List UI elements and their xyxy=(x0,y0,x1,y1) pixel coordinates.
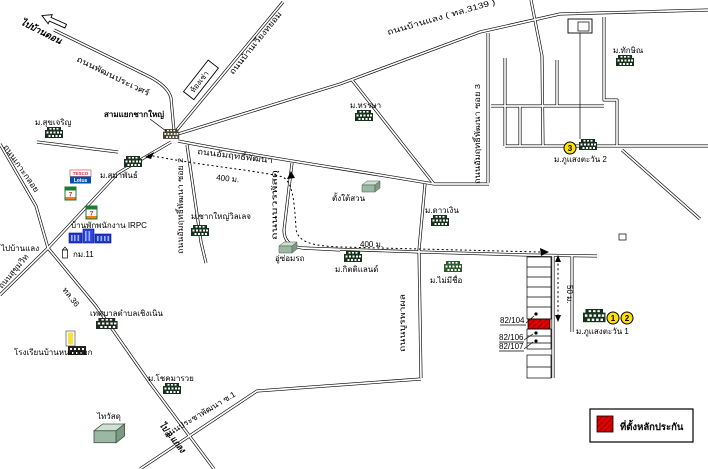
school-label: โรงเรียนบ้านหนองจอก xyxy=(14,347,93,357)
marker-2-number: 2 xyxy=(625,314,630,323)
phusaeng-tawan2-label: ม.ภูแสงตะวัน 2 xyxy=(554,155,607,165)
chok-maruay-label: ม.โชคมารวย xyxy=(148,373,194,383)
collateral-unit xyxy=(528,319,550,329)
no-name-village-icon xyxy=(444,261,462,272)
dao-ngoen-label: ม.ดาวเงิน xyxy=(425,206,459,215)
phusaeng-tawan1-icon xyxy=(583,309,606,322)
dao-ngoen-icon xyxy=(431,215,449,226)
road-label-bowon: ถนนบวรพัสดุ xyxy=(270,170,279,240)
lotus-text: Lotus xyxy=(74,178,88,184)
small-structure xyxy=(619,234,626,240)
road-connector xyxy=(352,80,434,184)
hansa-label: ม.หรรษา xyxy=(350,101,381,110)
distance-400m-a: 400 ม. xyxy=(216,173,240,184)
road-label-burapha: ถนนบูรพาผล xyxy=(398,294,407,352)
km11-label: กม.11 xyxy=(73,250,94,259)
junction-leader-line xyxy=(150,119,166,131)
phusaeng-tawan1-label: ม.ภูแสงตะวัน 1 xyxy=(576,327,629,337)
suk-charoen-label: ม.สุขเจริญ xyxy=(35,118,72,127)
road-label-tl36: ทล.36 xyxy=(60,286,81,309)
thaksin-label: ม.ทักษิณ xyxy=(613,46,644,55)
house-number-82-104: 82/104 xyxy=(500,316,525,325)
measure-arrow-bottom xyxy=(555,315,561,322)
road-label-ko-kloi: ถนนเกาะกลอย xyxy=(1,143,40,194)
km11-post-icon xyxy=(63,247,68,258)
seven-eleven-icon-2 xyxy=(86,206,97,219)
tesco-text: TESCO xyxy=(73,171,89,176)
legend-collateral-swatch xyxy=(597,416,613,432)
thai-watsadu-label: ไทวัสดุ xyxy=(96,412,121,421)
chak-yai-village-icon xyxy=(191,225,209,236)
samaphan-icon xyxy=(124,156,142,167)
tang-tai-suan-label: ตั้งใต้สวน xyxy=(332,192,366,203)
seven-eleven-icon-1 xyxy=(65,187,76,200)
municipality-label: เทศบาลตำบลเชิงเนิน xyxy=(90,309,164,318)
road-label-amrit-soi3: ถนนอัมฤทธิ์พัฒนา ซอย 3 xyxy=(472,84,482,184)
road-minor-suk-charoen xyxy=(37,142,118,152)
garage-icon xyxy=(279,242,297,253)
route-arrow-mid xyxy=(287,171,295,179)
kitti-land-icon xyxy=(344,251,362,262)
legend-label: ที่ตั้งหลักประกัน xyxy=(620,419,684,433)
irpc-housing-icon xyxy=(69,229,111,243)
road-ko-kloi xyxy=(0,144,48,248)
garage-label: อู่ซ่อมรถ xyxy=(275,254,305,264)
road-ban-laeng-3139 xyxy=(178,10,708,134)
road-label-amrit-soi2: ถนนอัมฤทธิ์พัฒนา ซอย 2 xyxy=(175,158,185,254)
marker-3-number: 3 xyxy=(568,144,573,153)
irpc-housing-label: บ้านพักพนักงาน IRPC xyxy=(71,221,147,230)
junction-label: สามแยกชากใหญ่ xyxy=(104,109,164,120)
road-estate2-right xyxy=(604,17,617,146)
tang-tai-suan-icon xyxy=(362,181,380,192)
legend: ที่ตั้งหลักประกัน xyxy=(590,409,693,442)
phusaeng-tawan2-icon xyxy=(579,139,597,150)
road-estate2-diagonal xyxy=(622,150,700,219)
dot-82-106 xyxy=(534,331,537,334)
distance-400m-b: 400 ม. xyxy=(360,240,383,249)
house-number-82-107: 82/107 xyxy=(499,342,524,351)
tesco-lotus-sign: TESCO Lotus xyxy=(70,170,91,184)
rental-rooms-box: ห้องเช่า xyxy=(184,60,219,100)
samaphan-label: ม.สมาพันธ์ xyxy=(100,170,138,180)
townhouse-row xyxy=(527,257,551,378)
municipality-icon xyxy=(96,318,118,329)
road-label-amrit: ถนนอัมฤทธิ์พัฒนา xyxy=(197,145,274,165)
hansa-icon xyxy=(355,110,373,121)
map-canvas: 7 xyxy=(0,0,708,469)
dot-82-107 xyxy=(534,339,537,342)
distance-50m: 50 ม. xyxy=(565,285,574,304)
marker-1-number: 1 xyxy=(611,314,616,323)
kitti-land-label: ม.กิตติแลนด์ xyxy=(335,264,378,274)
suk-charoen-icon xyxy=(45,127,63,138)
chok-maruay-icon xyxy=(163,383,181,394)
thaksin-icon xyxy=(616,55,634,66)
chak-yai-village-label: ม.ชากใหญ่วิลเลจ xyxy=(191,212,251,221)
house-number-82-106: 82/106 xyxy=(499,333,524,342)
direction-ban-laeng: ไปบ้านแลง xyxy=(0,244,39,253)
road-label-ban-wiang: ถนนบ้านเวียงทยอม xyxy=(228,10,284,76)
dot-82-104 xyxy=(534,312,537,315)
no-name-village-label: ม.ไม่มีชื่อ xyxy=(430,274,462,285)
thai-watsadu-icon xyxy=(94,424,125,443)
